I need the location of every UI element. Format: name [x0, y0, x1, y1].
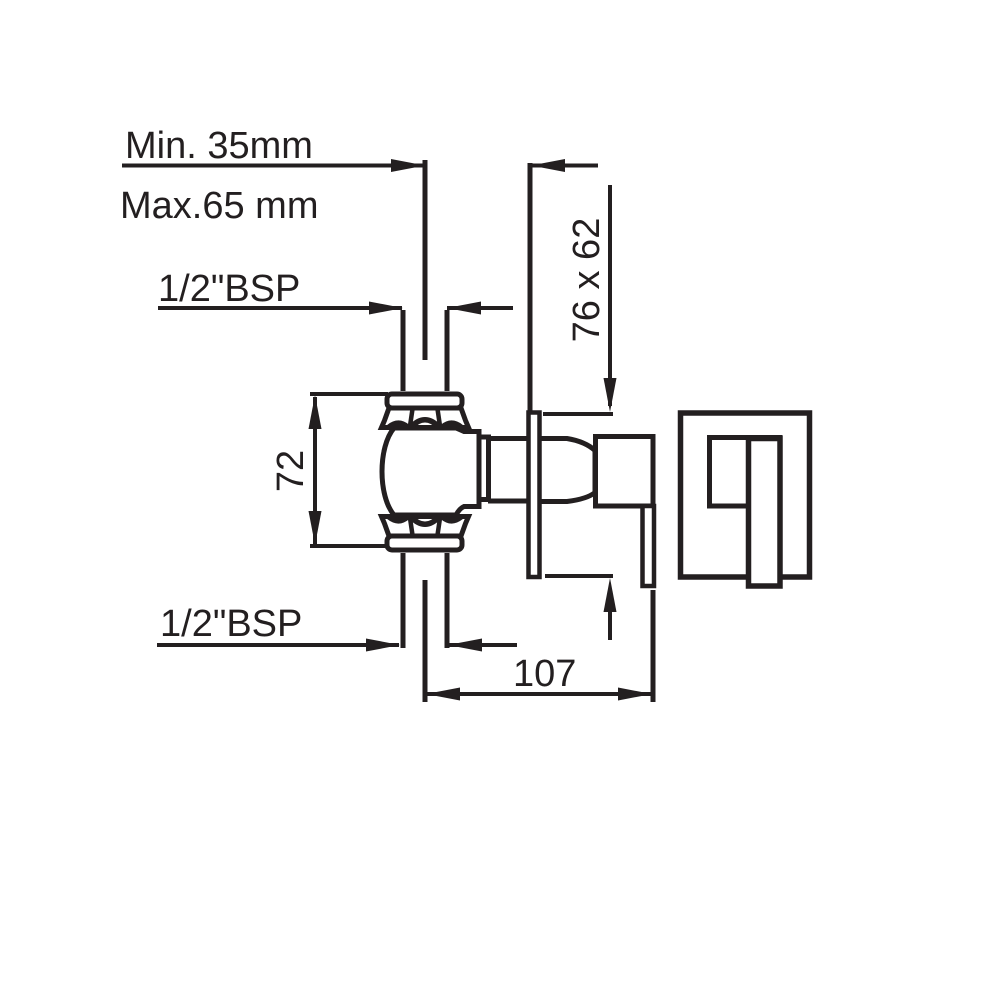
wall-plate-side — [529, 413, 540, 578]
thread-top-label: 1/2"BSP — [158, 268, 300, 310]
dim-projection: 107 — [426, 653, 652, 701]
dim-wall-depth: Min. 35mm Max.65 mm — [120, 125, 598, 227]
projection-label: 107 — [513, 653, 576, 695]
lever-side — [643, 506, 655, 586]
min-depth-arrowhead-left — [531, 159, 565, 172]
body-height-label: 72 — [270, 450, 312, 492]
plate-size-label: 76 x 62 — [566, 218, 608, 343]
handle-block-side — [596, 437, 654, 507]
thread-bottom-arrowhead-right — [366, 639, 400, 652]
bottom-pipe-cap — [387, 536, 462, 550]
stem-flange-ring — [479, 437, 489, 500]
plate-dim-arrowhead-down — [604, 378, 617, 412]
max-depth-label: Max.65 mm — [120, 185, 318, 227]
faceplate-front-view — [681, 413, 810, 586]
thread-top-arrowhead-right — [369, 302, 403, 315]
dim-thread-top: 1/2"BSP — [158, 268, 513, 315]
valve-side-view — [382, 394, 655, 586]
body-height-arrowhead-up — [309, 395, 322, 429]
thread-bottom-label: 1/2"BSP — [160, 603, 302, 645]
thread-bottom-arrowhead-left — [448, 639, 482, 652]
dim-body-height: 72 — [270, 394, 388, 546]
lever-front — [749, 439, 781, 587]
stem-taper — [539, 439, 596, 502]
technical-drawing: Min. 35mm Max.65 mm 1/2"BSP 76 x 62 72 1… — [0, 0, 1000, 1000]
valve-body — [382, 428, 479, 515]
drawing-canvas: Min. 35mm Max.65 mm 1/2"BSP 76 x 62 72 1… — [0, 0, 1000, 1000]
min-depth-label: Min. 35mm — [125, 125, 313, 167]
projection-arrowhead-left — [426, 688, 460, 701]
min-depth-arrowhead-right — [391, 159, 425, 172]
dim-thread-bottom: 1/2"BSP — [157, 603, 517, 652]
body-height-arrowhead-down — [309, 511, 322, 545]
dim-plate-size: 76 x 62 — [543, 185, 617, 640]
projection-arrowhead-right — [618, 688, 652, 701]
thread-top-arrowhead-left — [447, 302, 481, 315]
